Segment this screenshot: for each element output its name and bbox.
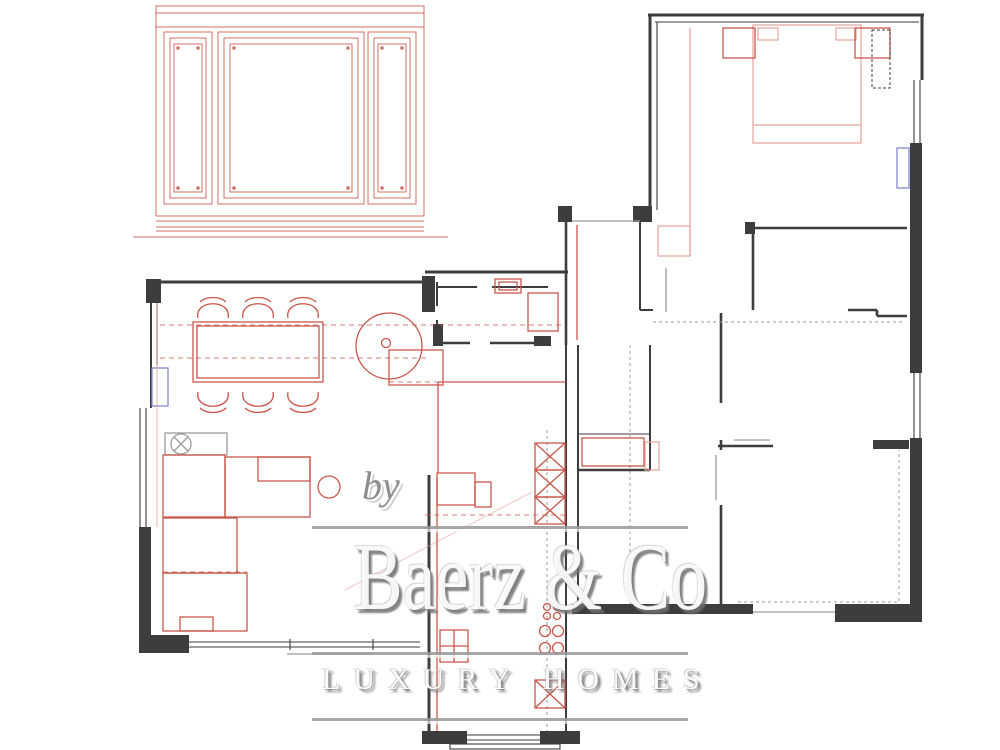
wall-paneling-elevation [133,6,448,237]
dining-table [193,322,323,382]
elevation-center-panel [218,32,364,204]
pillow [836,28,856,40]
ceiling-light-icon [165,433,227,455]
floor-plan-page: by Baerz & Co LUXURY HOMES [0,0,1000,750]
dining-chairs [198,298,319,413]
ceiling-dashed-lines [547,322,905,731]
wall-pier [422,276,435,312]
side-table [318,476,340,498]
elevation-right-panel [368,32,416,204]
radiator-window-left [152,368,168,406]
stove-burners [540,604,564,654]
nightstand-right [855,28,890,58]
door-openings [572,221,770,500]
sofa-sectional [163,455,310,631]
tall-cabinet-x [535,443,565,708]
window-markers [140,80,920,654]
nightstand-left [723,28,755,58]
kitchen [425,443,565,731]
furniture [157,25,890,731]
spiral-column [356,313,443,385]
radiator-window-right [897,148,909,188]
bedroom [658,25,890,256]
pillow [758,28,778,40]
kitchen-sink [440,630,468,662]
closet-shelf [582,438,644,466]
fixture [645,442,659,470]
elevation-left-panel [164,32,212,204]
kitchen-counter [437,473,475,505]
architectural-drawing [0,0,1000,750]
